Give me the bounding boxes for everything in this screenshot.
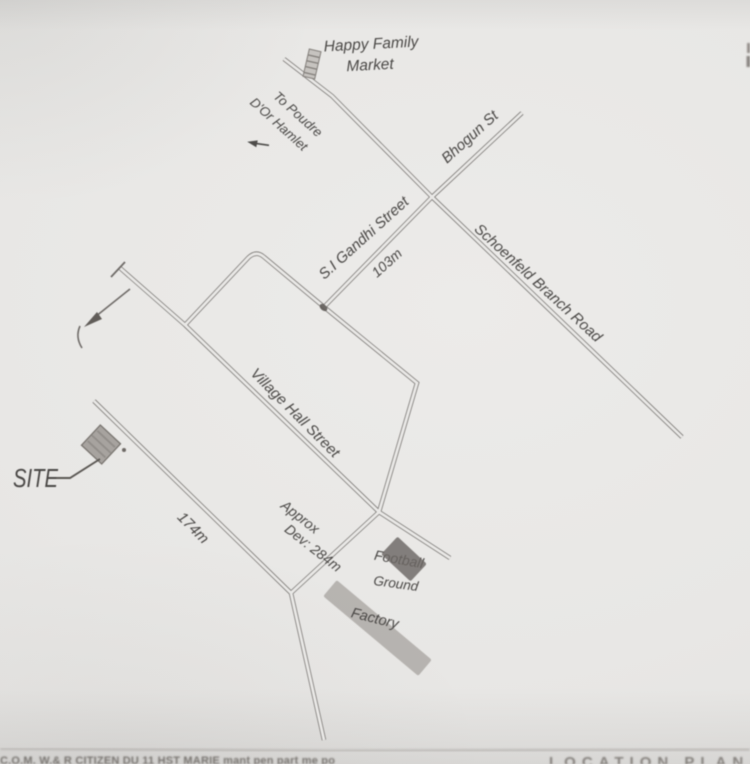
svg-text:Village Hall Street: Village Hall Street — [247, 365, 344, 462]
svg-text:Happy Family: Happy Family — [323, 33, 420, 55]
svg-text:SITE: SITE — [13, 464, 58, 493]
svg-text:LOCATION PLAN: LOCATION PLAN — [549, 754, 749, 764]
svg-text:Bhogun St: Bhogun St — [438, 107, 502, 167]
svg-text:174m: 174m — [174, 509, 213, 548]
svg-text:Market: Market — [346, 56, 395, 75]
svg-text:103m: 103m — [368, 245, 405, 281]
svg-text:C.O.M. W.& R CITIZEN DU 11 HST: C.O.M. W.& R CITIZEN DU 11 HST MARIE man… — [0, 755, 335, 764]
svg-text:S.I Gandhi Street: S.I Gandhi Street — [316, 193, 414, 283]
svg-text:Schoenfeld Branch Road: Schoenfeld Branch Road — [471, 221, 606, 347]
